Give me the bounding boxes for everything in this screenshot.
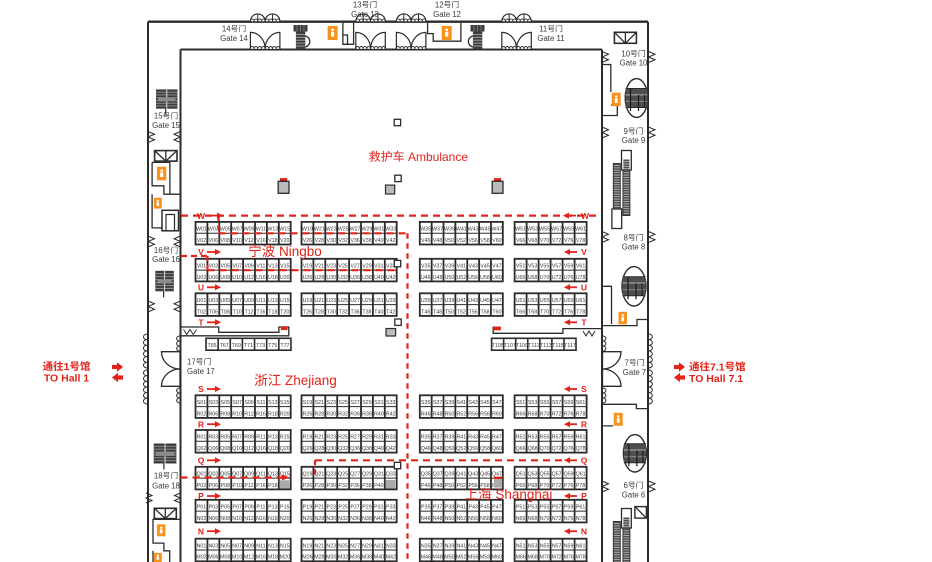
svg-text:R21: R21: [314, 435, 324, 441]
svg-text:M36: M36: [350, 555, 360, 561]
svg-text:R60: R60: [492, 411, 502, 417]
svg-text:N23: N23: [326, 543, 336, 549]
svg-text:T12: T12: [244, 309, 253, 315]
svg-text:Q40: Q40: [374, 446, 384, 452]
svg-text:U03: U03: [208, 298, 218, 304]
svg-text:W43: W43: [468, 227, 479, 233]
svg-text:U06: U06: [208, 275, 218, 281]
svg-text:R26: R26: [303, 411, 313, 417]
svg-text:N33: N33: [386, 543, 396, 549]
svg-text:M68: M68: [527, 555, 537, 561]
svg-text:U68: U68: [528, 275, 538, 281]
svg-text:T30: T30: [327, 309, 336, 315]
svg-text:S: S: [581, 384, 587, 394]
svg-text:Gate 14: Gate 14: [220, 34, 248, 43]
svg-text:N: N: [198, 526, 204, 536]
svg-text:P18: P18: [268, 483, 277, 489]
svg-text:R47: R47: [492, 435, 502, 441]
svg-text:V39: V39: [445, 264, 454, 270]
svg-text:P06: P06: [209, 483, 218, 489]
svg-text:T08: T08: [221, 309, 230, 315]
svg-text:Q20: Q20: [280, 446, 290, 452]
svg-text:P11: P11: [256, 505, 265, 511]
svg-text:M48: M48: [432, 555, 442, 561]
svg-text:R28: R28: [314, 411, 324, 417]
svg-text:R58: R58: [480, 411, 490, 417]
svg-text:S25: S25: [338, 400, 347, 406]
svg-text:R30: R30: [326, 411, 336, 417]
svg-text:T68: T68: [528, 309, 537, 315]
svg-text:S29: S29: [362, 400, 371, 406]
svg-text:V20: V20: [280, 238, 289, 244]
svg-text:N41: N41: [456, 543, 466, 549]
svg-text:U08: U08: [220, 275, 230, 281]
svg-text:U23: U23: [326, 298, 336, 304]
svg-text:N45: N45: [480, 543, 490, 549]
svg-text:T02: T02: [197, 309, 206, 315]
svg-text:N29: N29: [362, 543, 372, 549]
svg-text:S39: S39: [445, 400, 454, 406]
svg-text:R45: R45: [480, 435, 490, 441]
svg-text:T32: T32: [339, 309, 348, 315]
svg-text:W59: W59: [563, 227, 574, 233]
svg-text:S33: S33: [386, 400, 395, 406]
svg-text:V02: V02: [197, 238, 206, 244]
svg-text:T06: T06: [209, 309, 218, 315]
svg-text:W41: W41: [456, 227, 467, 233]
svg-text:T71: T71: [244, 343, 253, 349]
svg-text:P: P: [198, 491, 204, 501]
svg-text:T: T: [198, 318, 204, 328]
svg-text:V56: V56: [468, 238, 477, 244]
svg-text:T20: T20: [280, 309, 289, 315]
svg-text:S27: S27: [350, 400, 359, 406]
svg-text:R20: R20: [280, 411, 290, 417]
svg-text:T52: T52: [457, 309, 466, 315]
svg-text:U42: U42: [386, 275, 396, 281]
svg-text:U53: U53: [528, 298, 538, 304]
svg-text:Gate 7: Gate 7: [623, 368, 646, 377]
svg-text:Q53: Q53: [528, 472, 538, 478]
svg-text:9: 9: [624, 127, 628, 136]
svg-text:V05: V05: [221, 264, 230, 270]
svg-text:S23: S23: [327, 400, 336, 406]
svg-text:N30: N30: [326, 516, 336, 522]
svg-text:W21: W21: [314, 227, 325, 233]
svg-text:R39: R39: [445, 435, 455, 441]
svg-text:R55: R55: [540, 435, 550, 441]
svg-text:R70: R70: [540, 411, 550, 417]
svg-text:Q02: Q02: [196, 446, 206, 452]
svg-text:V41: V41: [457, 264, 466, 270]
svg-text:T38: T38: [362, 309, 371, 315]
svg-text:U56: U56: [468, 275, 478, 281]
svg-text:N08: N08: [220, 516, 230, 522]
svg-text:U46: U46: [421, 275, 431, 281]
svg-text:V28: V28: [315, 238, 324, 244]
svg-text:M28: M28: [314, 555, 324, 561]
svg-text:U61: U61: [576, 298, 586, 304]
svg-text:Q: Q: [198, 456, 205, 466]
svg-text:S19: S19: [303, 400, 312, 406]
svg-text:M12: M12: [244, 555, 254, 561]
svg-text:T28: T28: [315, 309, 324, 315]
svg-text:U18: U18: [268, 275, 278, 281]
svg-text:U41: U41: [456, 298, 466, 304]
svg-text:P43: P43: [468, 505, 477, 511]
svg-text:Q42: Q42: [386, 446, 396, 452]
svg-text:M70: M70: [539, 555, 549, 561]
svg-text:8: 8: [624, 233, 628, 242]
svg-text:6: 6: [624, 481, 628, 490]
svg-text:Shanghai: Shanghai: [495, 487, 552, 502]
svg-text:V13: V13: [268, 264, 277, 270]
svg-text:N57: N57: [552, 543, 562, 549]
svg-text:N27: N27: [350, 543, 360, 549]
svg-text:P07: P07: [232, 505, 241, 511]
svg-text:N51: N51: [516, 543, 526, 549]
svg-text:U51: U51: [516, 298, 526, 304]
svg-text:R19: R19: [303, 435, 313, 441]
svg-text:V42: V42: [386, 238, 395, 244]
svg-text:V06: V06: [209, 238, 218, 244]
svg-text:V09: V09: [244, 264, 253, 270]
svg-text:N70: N70: [540, 516, 550, 522]
svg-text:W29: W29: [361, 227, 372, 233]
svg-text:N15: N15: [280, 543, 290, 549]
svg-text:Q43: Q43: [468, 472, 478, 478]
svg-text:V61: V61: [576, 264, 585, 270]
svg-text:M72: M72: [551, 555, 561, 561]
svg-text:R03: R03: [208, 435, 218, 441]
svg-text:R50: R50: [445, 411, 455, 417]
svg-text:V: V: [581, 247, 587, 257]
svg-text:V03: V03: [209, 264, 218, 270]
svg-text:U45: U45: [480, 298, 490, 304]
svg-text:16: 16: [154, 246, 163, 255]
svg-text:N07: N07: [232, 543, 242, 549]
svg-text:M50: M50: [444, 555, 454, 561]
svg-text:V60: V60: [492, 238, 501, 244]
svg-text:R57: R57: [552, 435, 562, 441]
svg-text:W: W: [581, 211, 590, 221]
svg-text:W01: W01: [196, 227, 207, 233]
svg-text:T67: T67: [220, 343, 229, 349]
svg-text:M78: M78: [575, 555, 585, 561]
svg-text:N52: N52: [456, 516, 466, 522]
svg-text:Q33: Q33: [386, 472, 396, 478]
svg-text:P32: P32: [338, 483, 347, 489]
svg-text:N68: N68: [528, 516, 538, 522]
svg-text:S09: S09: [244, 400, 253, 406]
svg-text:Q08: Q08: [220, 446, 230, 452]
svg-text:R56: R56: [468, 411, 478, 417]
svg-text:V18: V18: [268, 238, 277, 244]
svg-text:U29: U29: [362, 298, 372, 304]
svg-text:R18: R18: [268, 411, 278, 417]
svg-text:N72: N72: [552, 516, 562, 522]
svg-text:Q28: Q28: [314, 446, 324, 452]
svg-text:T50: T50: [445, 309, 454, 315]
svg-text:Q25: Q25: [338, 472, 348, 478]
svg-text:R12: R12: [244, 411, 254, 417]
svg-text:P52: P52: [457, 483, 466, 489]
svg-text:R37: R37: [433, 435, 443, 441]
svg-text:U: U: [581, 283, 587, 293]
svg-text:N28: N28: [314, 516, 324, 522]
svg-text:W: W: [197, 211, 206, 221]
svg-text:U07: U07: [232, 298, 242, 304]
svg-text:P36: P36: [350, 483, 359, 489]
svg-text:V58: V58: [480, 238, 489, 244]
svg-text:Q61: Q61: [576, 472, 586, 478]
svg-text:W31: W31: [373, 227, 384, 233]
svg-text:V12: V12: [244, 238, 253, 244]
svg-text:R32: R32: [338, 411, 348, 417]
svg-text:P: P: [581, 491, 587, 501]
svg-text:U36: U36: [350, 275, 360, 281]
svg-text:V21: V21: [315, 264, 324, 270]
svg-text:U78: U78: [576, 275, 586, 281]
svg-text:V32: V32: [338, 238, 347, 244]
svg-text:14: 14: [222, 25, 231, 34]
svg-text:V48: V48: [433, 238, 442, 244]
svg-text:R25: R25: [338, 435, 348, 441]
svg-text:V55: V55: [540, 264, 549, 270]
svg-text:TO Hall 1: TO Hall 1: [44, 373, 89, 385]
svg-text:Gate 6: Gate 6: [622, 490, 645, 499]
svg-text:T117: T117: [564, 343, 576, 349]
svg-text:T109: T109: [516, 343, 528, 349]
svg-text:Ningbo: Ningbo: [279, 244, 322, 259]
svg-text:U58: U58: [480, 275, 490, 281]
svg-text:N32: N32: [338, 516, 348, 522]
svg-text:R31: R31: [374, 435, 384, 441]
svg-text:P23: P23: [327, 505, 336, 511]
svg-text:U13: U13: [268, 298, 278, 304]
svg-text:P57: P57: [552, 505, 561, 511]
svg-text:V70: V70: [540, 238, 549, 244]
svg-text:P59: P59: [564, 505, 573, 511]
svg-text:V57: V57: [552, 264, 561, 270]
svg-text:V46: V46: [421, 238, 430, 244]
svg-text:W39: W39: [444, 227, 455, 233]
svg-text:T78: T78: [576, 309, 585, 315]
svg-text:M08: M08: [220, 555, 230, 561]
svg-text:T75: T75: [268, 343, 277, 349]
svg-text:P05: P05: [221, 505, 230, 511]
svg-text:TO Hall 7.1: TO Hall 7.1: [689, 373, 743, 385]
svg-text:15: 15: [154, 112, 163, 121]
svg-text:U28: U28: [314, 275, 324, 281]
svg-text:U43: U43: [468, 298, 478, 304]
svg-text:R15: R15: [280, 435, 290, 441]
svg-text:T16: T16: [256, 309, 265, 315]
svg-text:T: T: [581, 318, 587, 328]
svg-text:M30: M30: [326, 555, 336, 561]
svg-text:N36: N36: [350, 516, 360, 522]
svg-text:T48: T48: [433, 309, 442, 315]
svg-text:R23: R23: [326, 435, 336, 441]
svg-text:Gate 12: Gate 12: [433, 10, 461, 19]
svg-text:R46: R46: [421, 411, 431, 417]
svg-text:N31: N31: [374, 543, 384, 549]
svg-text:P35: P35: [421, 505, 430, 511]
svg-text:P33: P33: [386, 505, 395, 511]
svg-text:N03: N03: [208, 543, 218, 549]
svg-text:N66: N66: [516, 516, 526, 522]
svg-text:V38: V38: [362, 238, 371, 244]
svg-text:W03: W03: [208, 227, 219, 233]
svg-text:R29: R29: [362, 435, 372, 441]
svg-text:R01: R01: [197, 435, 207, 441]
svg-text:Ambulance: Ambulance: [408, 150, 468, 164]
svg-text:Q32: Q32: [338, 446, 348, 452]
svg-text:N58: N58: [480, 516, 490, 522]
svg-text:R43: R43: [468, 435, 478, 441]
svg-text:M02: M02: [196, 555, 206, 561]
svg-text:P15: P15: [280, 505, 289, 511]
svg-text:U55: U55: [540, 298, 550, 304]
svg-text:P56: P56: [468, 483, 477, 489]
svg-text:Q: Q: [581, 456, 588, 466]
svg-text:U20: U20: [280, 275, 290, 281]
svg-text:T76: T76: [564, 309, 573, 315]
svg-text:Q38: Q38: [362, 446, 372, 452]
svg-text:T66: T66: [516, 309, 525, 315]
svg-text:V40: V40: [374, 238, 383, 244]
svg-text:P13: P13: [268, 505, 277, 511]
svg-text:N37: N37: [433, 543, 443, 549]
svg-text:N43: N43: [468, 543, 478, 549]
svg-text:U01: U01: [197, 298, 207, 304]
svg-text:T10: T10: [233, 309, 242, 315]
svg-text:Q10: Q10: [232, 446, 242, 452]
svg-text:V53: V53: [528, 264, 537, 270]
svg-text:U30: U30: [326, 275, 336, 281]
svg-text:P76: P76: [564, 483, 573, 489]
svg-text:U35: U35: [421, 298, 431, 304]
svg-text:V19: V19: [303, 264, 312, 270]
svg-text:N20: N20: [280, 516, 290, 522]
svg-text:Gate 9: Gate 9: [622, 136, 645, 145]
svg-text:P19: P19: [303, 505, 312, 511]
svg-text:Q18: Q18: [268, 446, 278, 452]
svg-text:V78: V78: [576, 238, 585, 244]
svg-text:W15: W15: [279, 227, 290, 233]
svg-text:U76: U76: [564, 275, 574, 281]
svg-text:W27: W27: [350, 227, 361, 233]
svg-text:Gate 8: Gate 8: [622, 243, 645, 252]
svg-text:P72: P72: [552, 483, 561, 489]
svg-text:P29: P29: [362, 505, 371, 511]
svg-text:N09: N09: [244, 543, 254, 549]
svg-text:U27: U27: [350, 298, 360, 304]
svg-text:R38: R38: [362, 411, 372, 417]
svg-text:V15: V15: [280, 264, 289, 270]
svg-text:S45: S45: [480, 400, 489, 406]
svg-text:P40: P40: [374, 483, 383, 489]
svg-text:10: 10: [621, 49, 630, 58]
svg-text:U37: U37: [433, 298, 443, 304]
svg-text:Q59: Q59: [564, 472, 574, 478]
svg-text:7: 7: [625, 358, 629, 367]
svg-text:R68: R68: [528, 411, 538, 417]
svg-text:Gate 18: Gate 18: [152, 482, 180, 491]
svg-text:N56: N56: [468, 516, 478, 522]
svg-text:S11: S11: [256, 400, 265, 406]
svg-text:S43: S43: [468, 400, 477, 406]
svg-text:T107: T107: [504, 343, 516, 349]
svg-text:W61: W61: [575, 227, 586, 233]
svg-text:T72: T72: [552, 309, 561, 315]
svg-text:S31: S31: [374, 400, 383, 406]
svg-text:S57: S57: [552, 400, 561, 406]
svg-text:Q46: Q46: [421, 446, 431, 452]
svg-text:Gate 16: Gate 16: [152, 255, 180, 264]
svg-text:P26: P26: [303, 483, 312, 489]
svg-text:Gate 13: Gate 13: [351, 10, 379, 19]
svg-text:P41: P41: [457, 505, 466, 511]
svg-text:M16: M16: [256, 555, 266, 561]
svg-text:V52: V52: [457, 238, 466, 244]
svg-text:M40: M40: [374, 555, 384, 561]
svg-text:P31: P31: [374, 505, 383, 511]
svg-text:M18: M18: [268, 555, 278, 561]
svg-text:S47: S47: [492, 400, 501, 406]
svg-text:M10: M10: [232, 555, 242, 561]
svg-text:T60: T60: [492, 309, 501, 315]
svg-text:V: V: [198, 247, 204, 257]
svg-text:U66: U66: [516, 275, 526, 281]
svg-text:R09: R09: [244, 435, 254, 441]
svg-text:R78: R78: [576, 411, 586, 417]
svg-text:T18: T18: [268, 309, 277, 315]
svg-text:T73: T73: [256, 343, 265, 349]
svg-text:W25: W25: [338, 227, 349, 233]
svg-text:W09: W09: [244, 227, 255, 233]
svg-text:Q72: Q72: [552, 446, 562, 452]
svg-text:T26: T26: [303, 309, 312, 315]
svg-text:Q58: Q58: [480, 446, 490, 452]
svg-text:18: 18: [154, 471, 163, 480]
svg-text:P01: P01: [197, 505, 206, 511]
svg-text:U25: U25: [338, 298, 348, 304]
svg-text:V08: V08: [221, 238, 230, 244]
svg-text:N42: N42: [386, 516, 396, 522]
svg-text:W47: W47: [491, 227, 502, 233]
svg-text:Gate 17: Gate 17: [187, 367, 215, 376]
svg-text:N06: N06: [208, 516, 218, 522]
svg-text:N02: N02: [197, 516, 207, 522]
svg-text:N47: N47: [492, 543, 502, 549]
svg-text:T36: T36: [350, 309, 359, 315]
svg-text:N46: N46: [421, 516, 431, 522]
svg-text:Q36: Q36: [350, 446, 360, 452]
svg-text:R51: R51: [516, 435, 526, 441]
svg-text:R07: R07: [232, 435, 242, 441]
svg-text:Gate 15: Gate 15: [152, 121, 180, 130]
svg-text:N61: N61: [576, 543, 586, 549]
svg-text:V26: V26: [303, 238, 312, 244]
svg-text:R66: R66: [516, 411, 526, 417]
svg-text:M66: M66: [515, 555, 525, 561]
svg-text:M76: M76: [563, 555, 573, 561]
svg-text:Q16: Q16: [256, 446, 266, 452]
svg-text:W53: W53: [527, 227, 538, 233]
svg-text:U15: U15: [280, 298, 290, 304]
svg-text:U31: U31: [374, 298, 384, 304]
